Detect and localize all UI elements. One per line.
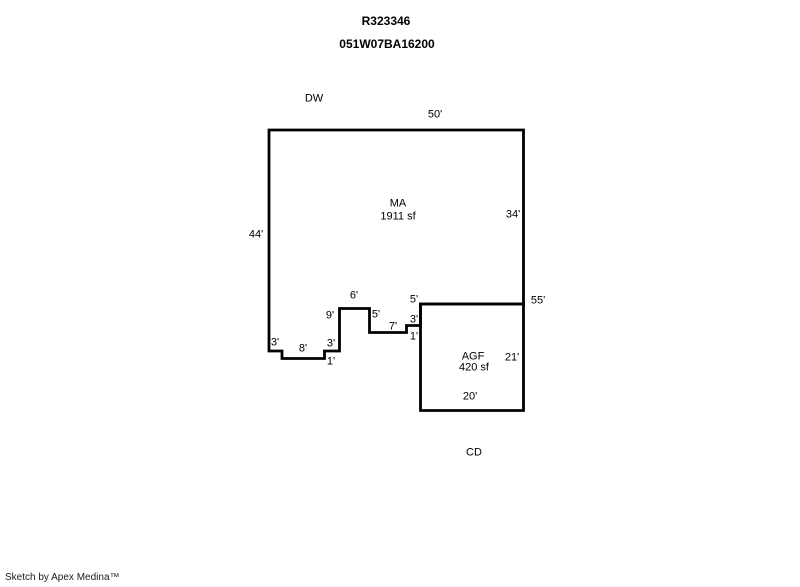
record-number: R323346 [362,14,411,28]
dim-label-bump-right: 5' [372,310,380,321]
dim-label-agf-right: 21' [505,353,519,364]
sketch-page: R323346 051W07BA16200 DW MA 1911 sf AGF … [0,0,800,587]
dim-label-right-total: 55' [531,296,545,307]
sketch-credit: Sketch by Apex Medina™ [5,572,120,583]
dim-label-notch-right: 3' [327,339,335,350]
footprint-drawing [0,0,800,587]
area-sqft-agf: 420 sf [459,363,489,374]
dim-label-agf-bottom: 20' [463,392,477,403]
dim-label-notch-step: 1' [327,357,335,368]
dim-label-jog-step-up: 1' [410,332,418,343]
dim-label-jog-mid: 7' [389,322,397,333]
parcel-number: 051W07BA16200 [339,37,434,51]
area-label-cd: CD [466,448,482,459]
dim-label-ma-right: 34' [506,210,520,221]
area-label-dw: DW [305,94,323,105]
dim-label-notch-bottom: 8' [299,344,307,355]
dim-label-ma-top: 50' [428,110,442,121]
dim-label-ma-left: 44' [249,230,263,241]
dim-label-jog-wall: 5' [410,295,418,306]
dim-label-jog-right: 3' [410,315,418,326]
dim-label-notch-left: 3' [271,338,279,349]
dim-label-bump-top: 6' [350,291,358,302]
area-label-ma: MA [390,199,407,210]
area-sqft-ma: 1911 sf [380,212,415,223]
dim-label-bump-left: 9' [326,311,334,322]
